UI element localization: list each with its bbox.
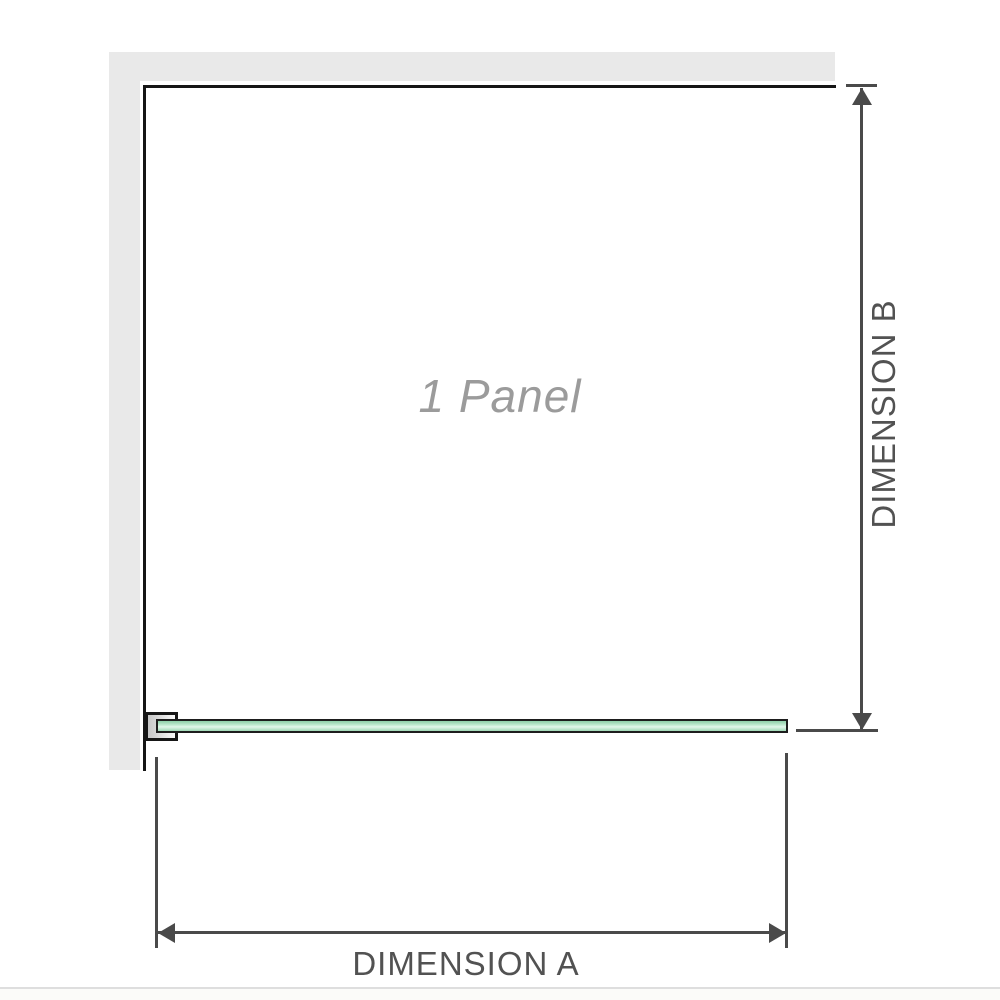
panel-count-label: 1 Panel bbox=[418, 369, 581, 423]
dimension-b-label: DIMENSION B bbox=[865, 299, 903, 528]
dimension-b-line bbox=[860, 88, 863, 730]
dimension-b-tick-top bbox=[846, 84, 877, 87]
wall-edge-left-line bbox=[143, 85, 146, 771]
arrow-up-icon bbox=[852, 88, 872, 105]
arrow-left-icon bbox=[158, 923, 175, 943]
arrow-down-icon bbox=[852, 713, 872, 730]
wall-edge-top-line bbox=[143, 85, 836, 88]
glass-panel bbox=[156, 719, 788, 733]
dimension-a-extension-right bbox=[785, 753, 788, 948]
arrow-right-icon bbox=[769, 923, 786, 943]
wall-top bbox=[109, 52, 835, 81]
dimension-a-label: DIMENSION A bbox=[352, 945, 579, 983]
page-bottom-divider bbox=[0, 987, 1000, 989]
diagram-canvas: 1 Panel DIMENSION B DIMENSION A bbox=[0, 0, 1000, 1000]
dimension-a-extension-left bbox=[155, 757, 158, 948]
page-footer-band bbox=[0, 989, 1000, 1000]
wall-left bbox=[109, 52, 140, 770]
dimension-a-line bbox=[158, 931, 786, 934]
